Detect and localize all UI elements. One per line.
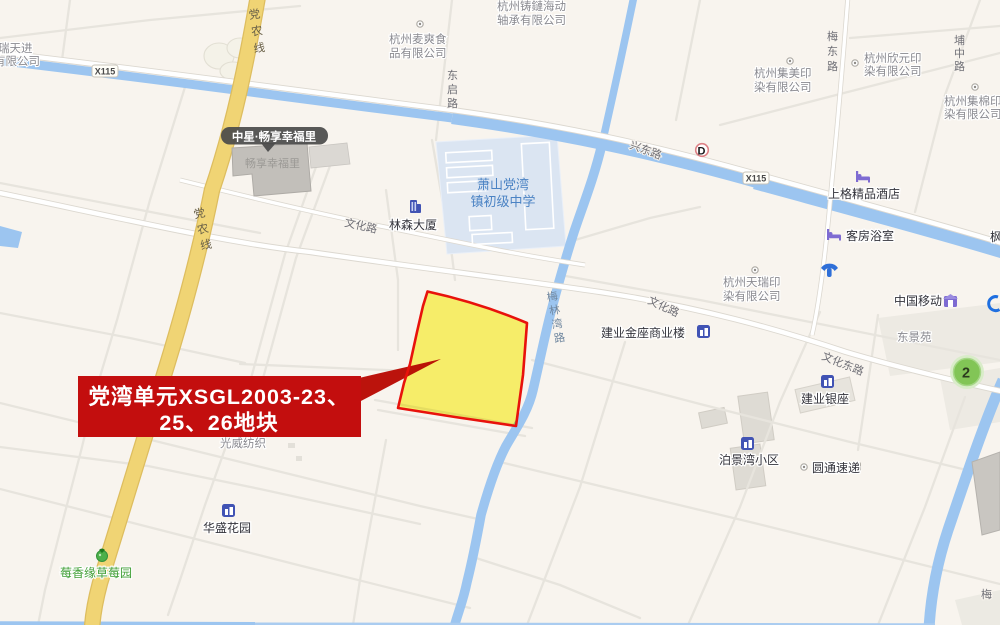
svg-text:莓香缘草莓园: 莓香缘草莓园: [60, 566, 132, 580]
svg-text:2: 2: [962, 366, 970, 382]
svg-text:圆通速递: 圆通速递: [812, 461, 860, 475]
svg-text:染有限公司: 染有限公司: [723, 289, 781, 303]
svg-text:党湾单元XSGL2003-23、: 党湾单元XSGL2003-23、: [89, 384, 350, 409]
svg-text:X115: X115: [746, 174, 767, 184]
svg-text:有限公司: 有限公司: [0, 54, 40, 68]
svg-text:东景苑: 东景苑: [897, 331, 932, 344]
svg-text:染有限公司: 染有限公司: [944, 107, 1000, 121]
svg-text:瑞天进: 瑞天进: [0, 41, 33, 55]
svg-text:泊景湾小区: 泊景湾小区: [719, 452, 779, 467]
svg-text:梅: 梅: [981, 587, 992, 601]
svg-text:品有限公司: 品有限公司: [389, 46, 447, 60]
svg-text:杭州集棉印: 杭州集棉印: [944, 94, 1000, 108]
svg-text:客房浴室: 客房浴室: [846, 228, 894, 243]
svg-text:D: D: [698, 146, 706, 158]
svg-text:染有限公司: 染有限公司: [864, 64, 922, 78]
svg-text:中星·畅享幸福里: 中星·畅享幸福里: [232, 130, 317, 144]
svg-text:梅东路: 梅东路: [827, 29, 838, 73]
svg-text:上格精品酒店: 上格精品酒店: [828, 186, 900, 201]
svg-text:镇初级中学: 镇初级中学: [470, 194, 535, 209]
svg-text:光威纺织: 光威纺织: [220, 436, 266, 450]
svg-text:林森大厦: 林森大厦: [389, 217, 437, 232]
svg-text:杭州麦爽食: 杭州麦爽食: [389, 32, 447, 46]
svg-text:染有限公司: 染有限公司: [754, 80, 812, 94]
svg-text:杭州铸鏈海动: 杭州铸鏈海动: [497, 0, 566, 13]
svg-text:建业金座商业楼: 建业金座商业楼: [601, 325, 685, 340]
svg-text:萧山党湾: 萧山党湾: [477, 177, 529, 192]
svg-text:华盛花园: 华盛花园: [203, 520, 251, 535]
svg-text:25、26地块: 25、26地块: [159, 411, 278, 435]
svg-text:东启路: 东启路: [447, 69, 458, 110]
svg-text:枫: 枫: [990, 229, 1000, 244]
svg-text:杭州天瑞印: 杭州天瑞印: [723, 275, 781, 289]
svg-text:轴承有限公司: 轴承有限公司: [497, 13, 566, 27]
svg-text:中国移动: 中国移动: [894, 293, 942, 308]
svg-text:畅享幸福里: 畅享幸福里: [245, 156, 300, 170]
svg-text:杭州欣元印: 杭州欣元印: [864, 51, 922, 65]
svg-text:建业银座: 建业银座: [801, 391, 849, 406]
svg-text:埔中路: 埔中路: [954, 34, 965, 73]
svg-text:杭州集美印: 杭州集美印: [754, 66, 812, 80]
svg-text:X115: X115: [95, 67, 116, 77]
